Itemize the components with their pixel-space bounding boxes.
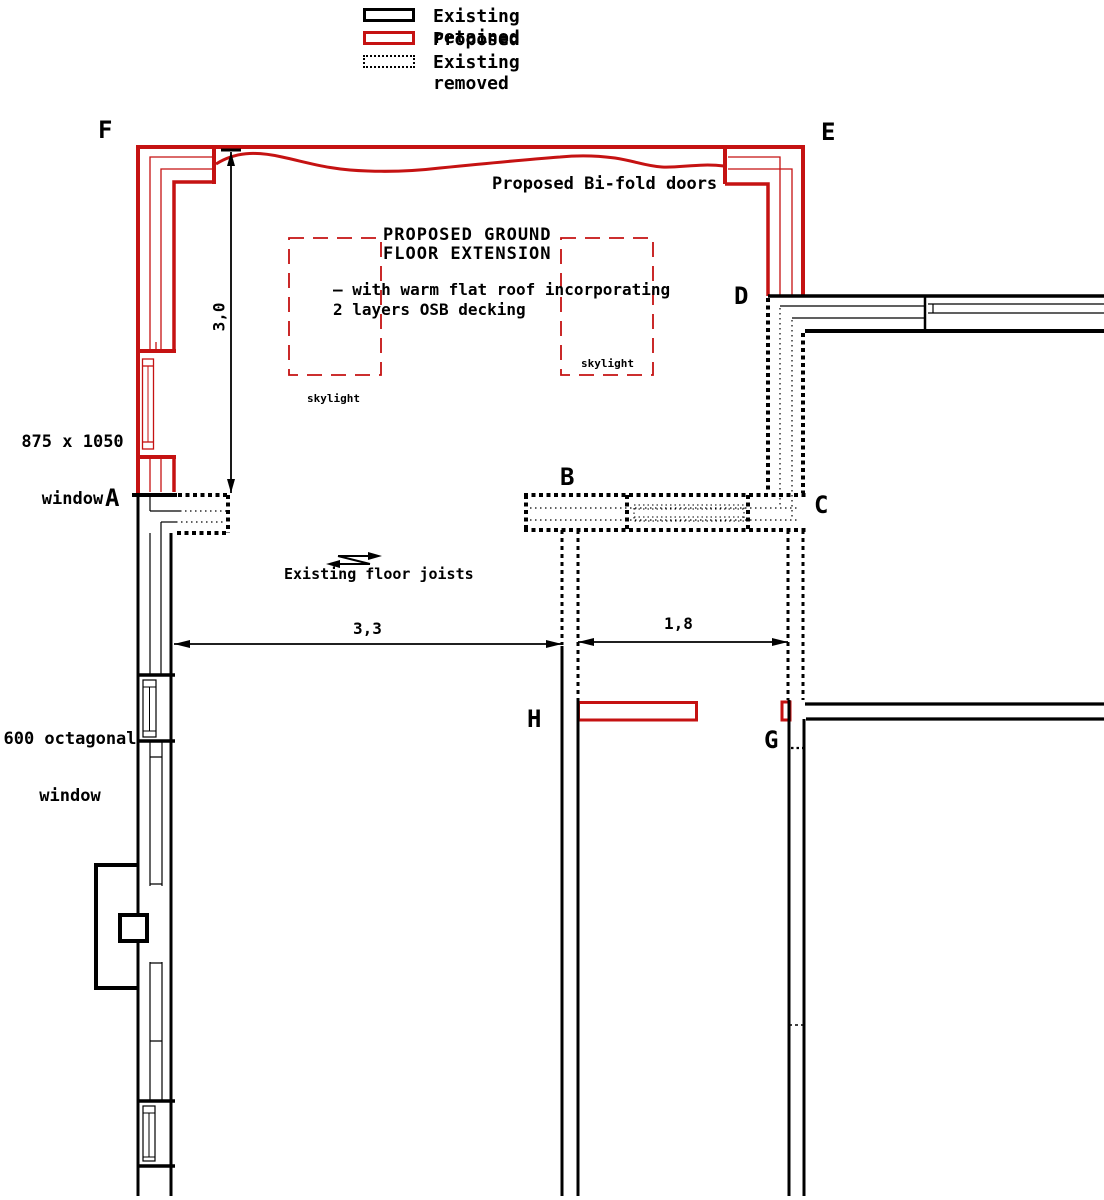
- roof-note-line1: – with warm flat roof incorporating: [333, 281, 670, 299]
- chimney-flue: [120, 915, 147, 941]
- window-600-octagonal: [137, 675, 175, 741]
- proposed-beam-h: [579, 703, 697, 721]
- bifold-door-line: [216, 153, 724, 171]
- window-875x1050: [136, 342, 176, 457]
- point-label-f: F: [98, 117, 112, 144]
- dimension-depth-value: 3,0: [211, 303, 229, 332]
- point-label-g: G: [764, 727, 778, 754]
- point-label-e: E: [821, 119, 835, 146]
- floor-joists-label: Existing floor joists: [284, 566, 474, 583]
- existing-removed-swatch-icon: [363, 55, 415, 68]
- roof-note-line2: 2 layers OSB decking: [333, 301, 526, 319]
- skylight-right-label: skylight: [581, 358, 634, 370]
- skylight-left-label: skylight: [307, 393, 360, 405]
- skylight-right: [561, 238, 653, 375]
- point-label-c: C: [814, 492, 828, 519]
- floor-plan-drawing: Existing retained Proposed Existing remo…: [0, 0, 1104, 1200]
- point-label-b: B: [560, 464, 574, 491]
- dimension-18-value: 1,8: [664, 615, 693, 633]
- window-lower-left: [137, 1101, 175, 1166]
- bifold-doors-label: Proposed Bi-fold doors: [492, 175, 717, 194]
- window-875-label: 875 x 1050 window: [15, 395, 130, 547]
- dimension-33-value: 3,3: [353, 620, 382, 638]
- legend-label: Proposed: [433, 29, 520, 50]
- existing-walls: [96, 296, 1104, 1196]
- extension-title-line1: PROPOSED GROUND: [383, 226, 552, 245]
- extension-title-line2: FLOOR EXTENSION: [383, 245, 552, 264]
- wall-bottom-right: [789, 700, 1104, 1196]
- point-label-h: H: [527, 706, 541, 733]
- point-label-a: A: [105, 485, 119, 512]
- wall-top-right: [768, 296, 1104, 331]
- proposed-swatch-icon: [363, 31, 415, 45]
- dimension-33: [174, 640, 562, 648]
- window-600-label: 600 octagonal window: [0, 692, 140, 844]
- dimension-18: [578, 638, 788, 646]
- point-label-d: D: [734, 283, 748, 310]
- existing-retained-swatch-icon: [363, 8, 415, 22]
- legend-label: Existing removed: [433, 52, 520, 94]
